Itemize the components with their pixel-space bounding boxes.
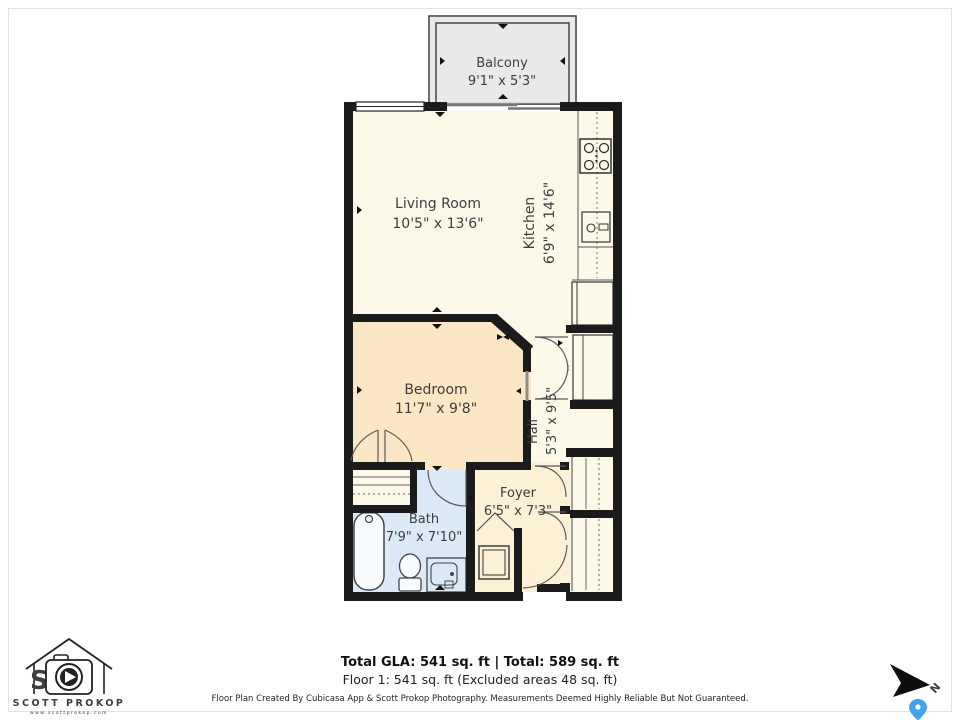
window bbox=[356, 102, 424, 111]
disclaimer-line: Floor Plan Created By Cubicasa App & Sco… bbox=[0, 694, 960, 704]
entry-door-leaf bbox=[537, 584, 566, 592]
balcony-label: Balcony bbox=[476, 56, 528, 71]
floor-plan-canvas: Balcony 9'1" x 5'3" Living Room 10'5" x … bbox=[0, 0, 960, 720]
living-room-label: Living Room bbox=[395, 196, 481, 212]
foyer-label: Foyer bbox=[500, 486, 537, 501]
bath-label: Bath bbox=[409, 512, 439, 527]
hall-dims: 5'3" x 9'5" bbox=[545, 387, 560, 455]
hall-label: Hall bbox=[526, 419, 541, 444]
floor-plan-page: Balcony 9'1" x 5'3" Living Room 10'5" x … bbox=[0, 0, 960, 720]
floor-area-line: Floor 1: 541 sq. ft (Excluded areas 48 s… bbox=[0, 672, 960, 687]
balcony-dims: 9'1" x 5'3" bbox=[468, 74, 536, 89]
bedroom-dims: 11'7" x 9'8" bbox=[395, 401, 477, 417]
kitchen-label: Kitchen bbox=[522, 197, 538, 250]
logo-url: www.scottprokop.com bbox=[30, 710, 108, 716]
toilet bbox=[399, 554, 421, 591]
bathtub bbox=[354, 512, 384, 590]
total-area-line: Total GLA: 541 sq. ft | Total: 589 sq. f… bbox=[0, 655, 960, 670]
bedroom-closet-area bbox=[353, 470, 410, 505]
bedroom-label: Bedroom bbox=[404, 382, 467, 398]
foyer-dims: 6'5" x 7'3" bbox=[484, 504, 552, 519]
kitchen-dims: 6'9" x 14'6" bbox=[542, 182, 558, 264]
living-room-dims: 10'5" x 13'6" bbox=[392, 216, 483, 232]
bath-dims: 7'9" x 7'10" bbox=[386, 530, 462, 545]
